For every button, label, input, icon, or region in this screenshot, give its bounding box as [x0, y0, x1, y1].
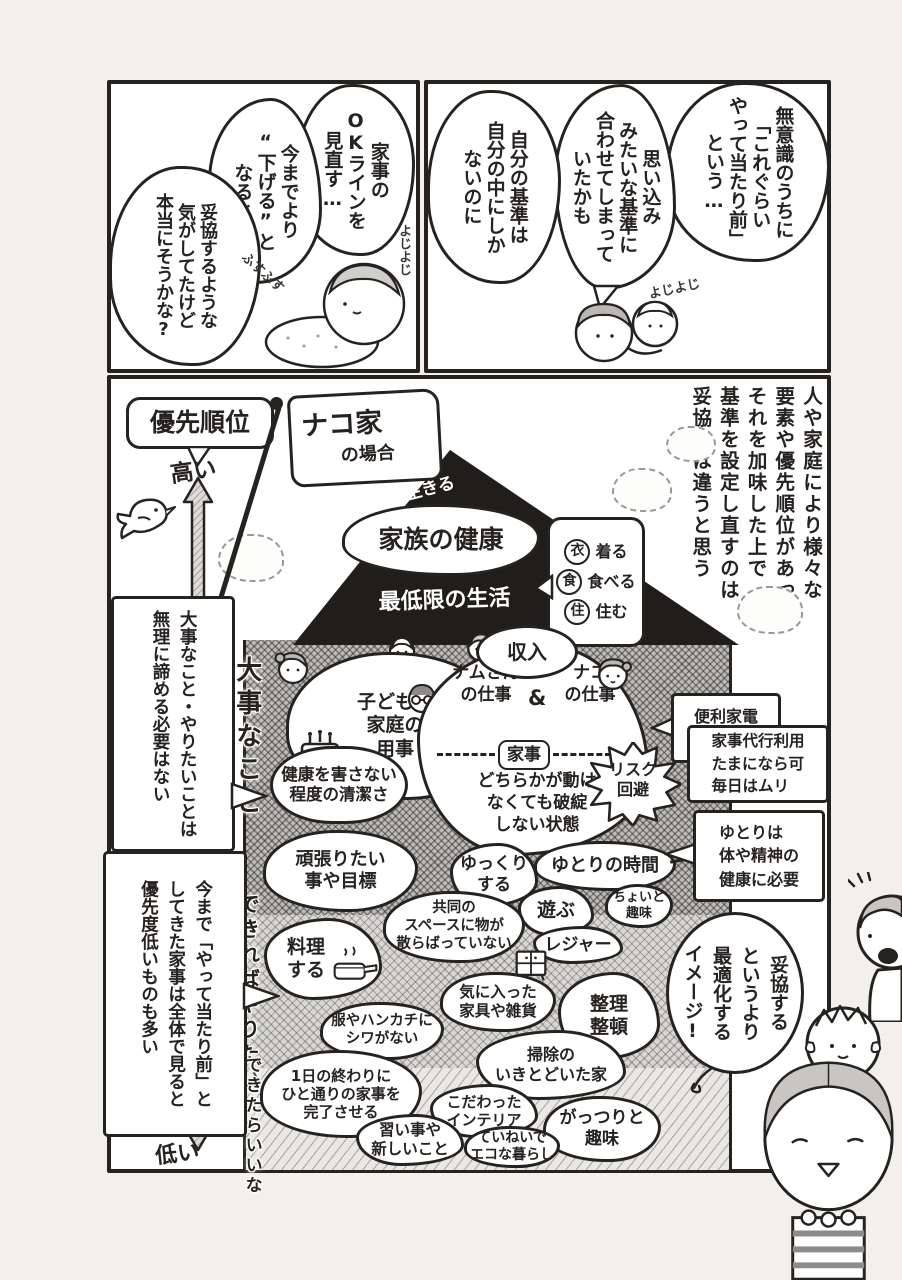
nako-face-icon: [594, 654, 632, 692]
bubble-ishokuju: 衣 着る 食 食べる 住 住む: [547, 517, 645, 647]
speech-bubble-own-standard: 自分の基準は 自分の中にしか ないのに: [427, 90, 561, 284]
mom-character: [753, 1042, 902, 1280]
ishokuju-row-clothing: 衣 着る: [564, 539, 627, 565]
flag-banner: ナコ家 の場合: [287, 388, 444, 488]
speech-bubble-compromise-question: 妥協するような 気がしてたけど 本当にそうかな?: [109, 166, 261, 366]
kaji-divider-left: [437, 753, 495, 756]
bubble-income: 収入: [476, 625, 578, 679]
optimize-bubble-tail: [688, 1066, 718, 1096]
note-dont-give-up: 大事なこと・やりたいことは 無理に諦める必要はない: [111, 596, 235, 852]
sleeping-baby-character: [252, 252, 417, 370]
bubble-cleanliness: 健康を害さない 程度の清潔さ: [270, 746, 408, 824]
axis-low-label: 低い: [153, 1134, 200, 1170]
bubble-family-health: 家族の健康: [342, 504, 540, 576]
axis-title-box: 優先順位: [126, 397, 274, 449]
bubble-lessons: 習い事や 新しいこと: [356, 1114, 464, 1166]
speech-bubble-unconscious: 無意識のうちに 「これぐらい やって当たり前」 という…: [666, 82, 830, 262]
note-low-priority: 今まで「やって当たり前」と してきた家事は全体で見ると 優先度低いものも多い: [103, 851, 247, 1137]
cloud-icon: [737, 586, 803, 634]
manga-page: 家事の OKラインを 見直す… 今までより “下げる”と なると 妥協するような…: [0, 0, 902, 1280]
circled-kanji-food: 食: [556, 569, 582, 595]
ishokuju-label-live: 住む: [595, 602, 627, 622]
bubble-shared-space: 共同の スペースに物が 散らばっていない: [383, 891, 525, 963]
mom-carrying-baby-character: [558, 288, 688, 373]
note1-pointer: [230, 782, 268, 810]
bubble-goals: 頑張りたい 事や目標: [263, 830, 418, 912]
speech-bubble-assumption: 思い込み みたいな基準に 合わせてしまって いたかも: [554, 84, 676, 290]
note-yutori: ゆとりは 体や精神の 健康に必要: [693, 810, 825, 902]
circled-kanji-clothing: 衣: [564, 539, 590, 565]
bird-icon: [112, 490, 178, 548]
bubble-eco-living: ていねいで エコな暮らし: [464, 1126, 560, 1168]
bubble-metime: ゆとりの時間: [534, 841, 676, 891]
ishokuju-label-eat: 食べる: [587, 572, 635, 592]
cloud-icon: [612, 468, 672, 512]
kaji-label-box: 家事: [498, 740, 550, 770]
roof-minimum-label: 最低限の生活: [351, 579, 537, 617]
note-housework-service: 家事代行利用 たまになら可 毎日はムリ: [687, 725, 829, 803]
risk-avoidance-label: リスク 回避: [597, 760, 669, 800]
ishokuju-tail: [534, 574, 554, 600]
flag-case-label: の場合: [340, 437, 429, 468]
ishokuju-row-housing: 住 住む: [564, 599, 627, 625]
mom-bun-face-icon: [272, 646, 312, 686]
ishokuju-label-wear: 着る: [595, 542, 627, 562]
flag-pole-top: [270, 397, 283, 410]
bubble-small-hobby: ちょいと 趣味: [605, 884, 673, 928]
circled-kanji-housing: 住: [564, 599, 590, 625]
cooking-pot-icon: [328, 944, 378, 990]
bubble-furniture: 気に入った 家具や雑貨: [440, 972, 556, 1032]
flag-family-name: ナコ家: [300, 398, 428, 444]
note2-pointer: [242, 982, 280, 1010]
work-ampersand: &: [528, 686, 546, 710]
ishokuju-row-food: 食 食べる: [556, 569, 635, 595]
bubble-serious-hobby: がっつりと 趣味: [543, 1096, 661, 1162]
cloud-icon: [666, 426, 716, 462]
